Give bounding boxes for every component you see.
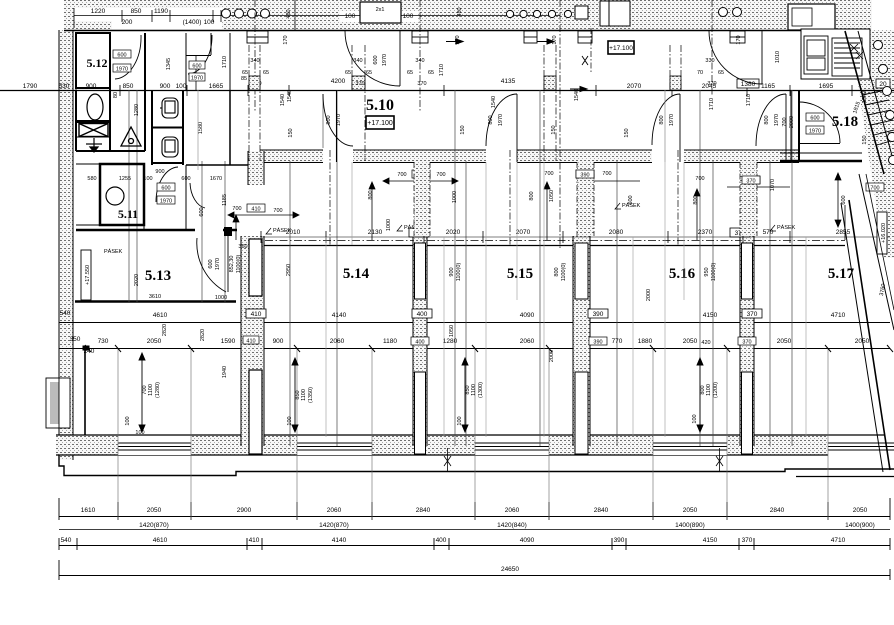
svg-text:1710: 1710 [439,64,445,76]
svg-text:950: 950 [704,267,710,276]
svg-text:PÁSEK: PÁSEK [622,202,641,209]
svg-text:1970: 1970 [669,114,675,126]
svg-text:4150: 4150 [703,312,718,319]
svg-text:480: 480 [457,7,463,16]
svg-text:1400(900): 1400(900) [845,522,875,529]
svg-text:900: 900 [449,267,455,276]
svg-text:2050: 2050 [777,338,792,345]
svg-text:1710: 1710 [222,56,228,68]
svg-text:1100(0): 1100(0) [236,255,242,274]
svg-text:+17.100: +17.100 [609,45,633,52]
svg-text:1970: 1970 [191,76,203,82]
svg-text:410: 410 [251,311,262,318]
svg-text:100: 100 [287,416,293,425]
svg-text:1970: 1970 [160,199,172,205]
svg-text:1255: 1255 [119,176,131,182]
svg-text:65: 65 [366,70,372,76]
svg-text:730: 730 [98,338,109,345]
svg-text:1220: 1220 [91,8,106,15]
svg-text:1540: 1540 [491,96,497,108]
svg-text:200: 200 [122,19,133,26]
svg-text:(1350): (1350) [308,387,314,403]
svg-text:100: 100 [403,13,414,20]
svg-text:1100(0): 1100(0) [711,263,717,282]
svg-text:580: 580 [87,176,96,182]
svg-text:410: 410 [249,537,260,544]
svg-text:150: 150 [288,128,294,137]
svg-text:100: 100 [204,19,215,26]
svg-text:2820: 2820 [200,329,206,341]
svg-text:2020: 2020 [446,229,461,236]
svg-text:700: 700 [232,206,241,212]
svg-text:1970: 1970 [382,54,388,66]
svg-text:800: 800 [693,195,699,204]
svg-text:170: 170 [283,35,289,44]
svg-text:350: 350 [70,336,81,343]
svg-text:PÁSEK: PÁSEK [777,224,796,231]
svg-text:100: 100 [135,430,144,436]
svg-text:150: 150 [624,128,630,137]
svg-text:4150: 4150 [703,537,718,544]
svg-text:2130: 2130 [368,229,383,236]
svg-text:2050: 2050 [147,507,162,514]
svg-text:600: 600 [117,53,126,59]
svg-text:100: 100 [692,414,698,423]
svg-text:1970: 1970 [215,258,221,270]
svg-text:900: 900 [160,83,171,90]
svg-text:700: 700 [602,171,611,177]
svg-text:540: 540 [60,310,71,317]
svg-text:(1300): (1300) [478,382,484,398]
svg-text:600: 600 [373,55,379,64]
svg-text:(1200): (1200) [713,382,719,398]
svg-text:+16.020: +16.020 [881,223,887,243]
svg-text:420: 420 [701,340,710,346]
svg-text:5.11: 5.11 [118,207,138,221]
svg-text:170: 170 [736,35,742,44]
svg-text:4090: 4090 [520,537,535,544]
svg-text:600: 600 [192,64,201,70]
svg-text:570: 570 [763,229,774,236]
svg-text:1000: 1000 [386,219,392,231]
svg-text:2070: 2070 [627,83,642,90]
svg-text:2080: 2080 [609,229,624,236]
svg-text:2900: 2900 [237,507,252,514]
svg-text:1940: 1940 [222,366,228,378]
svg-text:370: 370 [747,311,758,318]
svg-text:1420(870): 1420(870) [319,522,349,529]
svg-text:PÁSEK: PÁSEK [273,227,292,234]
svg-text:5.18: 5.18 [832,114,858,130]
svg-text:1420(870): 1420(870) [139,522,169,529]
svg-text:+17.550: +17.550 [85,265,91,285]
svg-text:700: 700 [544,171,553,177]
svg-text:65: 65 [345,70,351,76]
svg-text:5.10: 5.10 [366,97,394,114]
svg-text:2840: 2840 [416,507,431,514]
svg-text:1670: 1670 [210,176,222,182]
svg-text:390: 390 [593,340,602,346]
svg-text:340: 340 [353,58,362,64]
svg-text:100: 100 [457,416,463,425]
svg-text:1540: 1540 [287,90,293,102]
svg-text:600: 600 [841,195,847,204]
svg-text:1345: 1345 [166,58,172,70]
svg-text:1100: 1100 [706,384,712,396]
svg-text:400: 400 [436,537,447,544]
svg-text:150: 150 [460,125,466,134]
svg-text:1100(0): 1100(0) [561,263,567,282]
svg-text:410: 410 [246,339,255,345]
svg-text:1970: 1970 [774,114,780,126]
svg-text:1710: 1710 [709,98,715,110]
svg-text:1050: 1050 [549,190,555,202]
svg-text:2820: 2820 [162,324,168,336]
svg-text:(1400): (1400) [183,19,202,26]
svg-text:1710: 1710 [746,94,752,106]
svg-text:1420(840): 1420(840) [497,522,527,529]
svg-text:1100(0): 1100(0) [456,263,462,282]
svg-text:600: 600 [208,259,214,268]
svg-text:4090: 4090 [520,312,535,319]
svg-text:5.13: 5.13 [145,268,171,284]
svg-text:1180: 1180 [383,338,397,345]
svg-text:4140: 4140 [332,537,347,544]
svg-text:85: 85 [241,76,247,82]
svg-text:1070: 1070 [770,179,776,191]
svg-text:400: 400 [417,311,428,318]
svg-text:540: 540 [61,537,72,544]
svg-text:2x1: 2x1 [376,7,385,13]
svg-text:700: 700 [782,117,788,126]
svg-text:2950: 2950 [286,264,292,276]
svg-text:2020: 2020 [134,274,140,286]
svg-text:330: 330 [705,58,714,64]
svg-text:4610: 4610 [153,537,168,544]
svg-text:1665: 1665 [209,83,224,90]
svg-text:170: 170 [552,35,558,44]
svg-text:2060: 2060 [330,338,345,345]
svg-text:1010: 1010 [775,51,781,63]
svg-text:5.15: 5.15 [507,266,533,282]
svg-text:5.16: 5.16 [669,266,696,282]
svg-text:1970: 1970 [498,114,504,126]
svg-text:(1280): (1280) [155,382,161,398]
svg-text:1280: 1280 [134,104,140,116]
svg-text:2050: 2050 [147,338,162,345]
svg-text:100: 100 [125,416,131,425]
svg-text:100: 100 [345,13,356,20]
svg-text:1970: 1970 [809,129,821,135]
svg-text:4710: 4710 [831,312,846,319]
svg-text:65: 65 [428,70,434,76]
svg-text:4710: 4710 [831,537,846,544]
svg-text:700: 700 [397,172,406,178]
svg-text:1540: 1540 [574,89,580,101]
svg-text:1400(890): 1400(890) [675,522,705,529]
svg-text:1695: 1695 [819,83,834,90]
svg-text:1580: 1580 [198,122,204,134]
svg-text:800: 800 [488,115,494,124]
svg-text:770: 770 [612,338,623,345]
svg-text:900: 900 [273,338,284,345]
svg-text:2070: 2070 [516,229,531,236]
svg-text:852,30: 852,30 [229,256,235,273]
svg-text:4610: 4610 [153,312,168,319]
svg-text:24650: 24650 [501,566,519,573]
svg-text:70: 70 [697,70,703,76]
svg-text:1100: 1100 [301,389,307,401]
svg-text:410: 410 [251,207,260,213]
svg-text:2050: 2050 [853,507,868,514]
svg-text:800: 800 [326,115,332,124]
svg-text:800: 800 [554,267,560,276]
svg-text:80: 80 [113,92,119,98]
svg-text:65: 65 [718,70,724,76]
svg-text:2050: 2050 [683,338,698,345]
svg-text:1970: 1970 [116,67,128,73]
svg-text:370: 370 [417,81,426,87]
svg-text:1590: 1590 [221,338,236,345]
svg-text:1000: 1000 [215,295,227,301]
svg-text:1185: 1185 [222,194,228,206]
svg-text:370: 370 [742,340,751,346]
svg-text:3610: 3610 [149,294,161,300]
svg-text:1280: 1280 [443,338,458,345]
svg-text:390: 390 [580,173,589,179]
svg-text:65: 65 [407,70,413,76]
svg-text:700: 700 [695,176,704,182]
svg-text:1790: 1790 [23,83,38,90]
svg-text:1050: 1050 [449,325,455,337]
svg-text:800: 800 [659,115,665,124]
svg-text:5.14: 5.14 [343,266,370,282]
svg-text:1880: 1880 [638,338,653,345]
svg-text:5.17: 5.17 [828,266,855,282]
svg-text:390: 390 [614,537,625,544]
svg-text:370: 370 [746,179,755,185]
svg-text:1190: 1190 [154,8,168,15]
svg-text:+17.100: +17.100 [367,120,393,127]
svg-text:2050: 2050 [683,507,698,514]
svg-text:350: 350 [238,244,247,250]
svg-text:800: 800 [529,191,535,200]
svg-text:700: 700 [273,208,282,214]
svg-text:2855: 2855 [836,229,851,236]
svg-text:600: 600 [199,207,205,216]
svg-text:800: 800 [764,115,770,124]
svg-text:2370: 2370 [698,229,713,236]
svg-text:2060: 2060 [505,507,520,514]
svg-text:2000: 2000 [646,289,652,301]
svg-text:1540: 1540 [280,94,286,106]
svg-text:4135: 4135 [501,78,516,85]
svg-text:100: 100 [143,176,152,182]
svg-text:800: 800 [368,190,374,199]
svg-text:2840: 2840 [594,507,609,514]
svg-text:700: 700 [870,186,879,192]
svg-text:1000: 1000 [452,191,458,203]
svg-text:100: 100 [176,83,187,90]
svg-text:1100: 1100 [148,384,154,396]
svg-text:390: 390 [593,311,604,318]
svg-text:4200: 4200 [331,78,346,85]
svg-text:1610: 1610 [81,507,96,514]
svg-text:2000: 2000 [549,350,555,362]
svg-text:400: 400 [415,340,424,346]
svg-text:2840: 2840 [770,507,785,514]
svg-text:150: 150 [862,135,868,144]
svg-text:480: 480 [286,9,292,18]
svg-text:4140: 4140 [332,312,347,319]
svg-text:600: 600 [161,186,170,192]
svg-text:700: 700 [436,172,445,178]
svg-text:1100: 1100 [471,384,477,396]
svg-text:2060: 2060 [327,507,342,514]
svg-text:5.12: 5.12 [87,56,108,70]
svg-text:1165: 1165 [761,83,775,90]
svg-text:900: 900 [155,169,164,175]
svg-text:530: 530 [59,83,70,90]
svg-text:850: 850 [123,83,134,90]
svg-text:370: 370 [355,81,364,87]
svg-text:65: 65 [263,70,269,76]
svg-text:850: 850 [131,8,142,15]
svg-text:370: 370 [742,537,753,544]
svg-text:600: 600 [810,116,819,122]
svg-text:PÁSEK: PÁSEK [104,248,123,255]
svg-text:2060: 2060 [520,338,535,345]
svg-text:1970: 1970 [336,114,342,126]
svg-text:2000: 2000 [789,116,795,128]
